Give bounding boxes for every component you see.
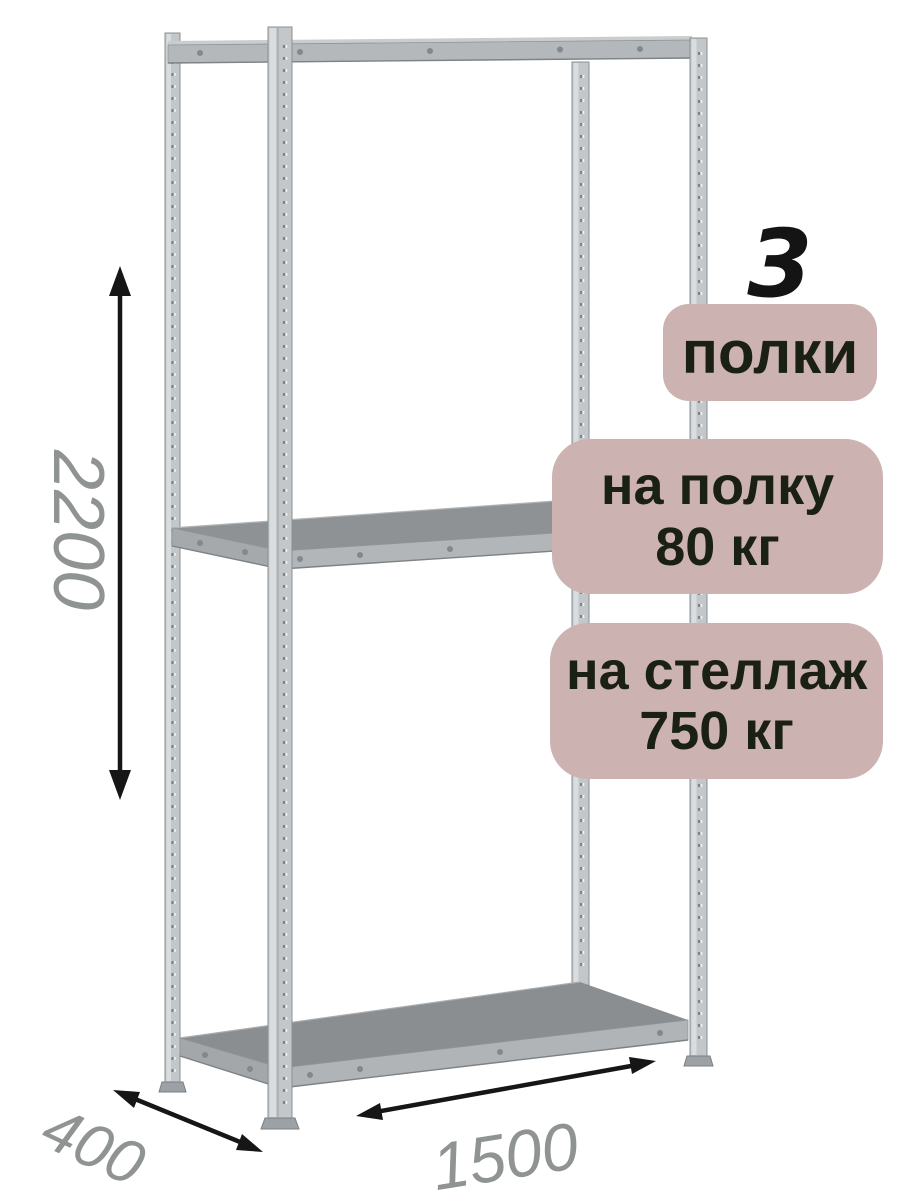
shelving-rack-illustration xyxy=(0,0,900,1200)
shelves-count-badge: полки xyxy=(663,304,877,401)
rack-load-line2: 750 кг xyxy=(639,701,794,761)
shelf-load-line1: на полку xyxy=(601,456,834,516)
post-back-left xyxy=(165,33,180,1082)
shelf-top xyxy=(168,36,692,63)
rack-load-badge: на стеллаж 750 кг xyxy=(550,623,883,779)
shelf-bottom xyxy=(180,982,688,1088)
height-dimension-label: 2200 xyxy=(38,409,118,651)
shelf-load-line2: 80 кг xyxy=(655,517,780,577)
rack-load-line1: на стеллаж xyxy=(566,641,867,701)
shelves-count-label: полки xyxy=(682,318,858,387)
product-image-canvas: 2200 400 1500 3 полки на полку 80 кг на … xyxy=(0,0,900,1200)
post-front-left xyxy=(268,27,292,1118)
shelf-load-badge: на полку 80 кг xyxy=(552,439,883,594)
